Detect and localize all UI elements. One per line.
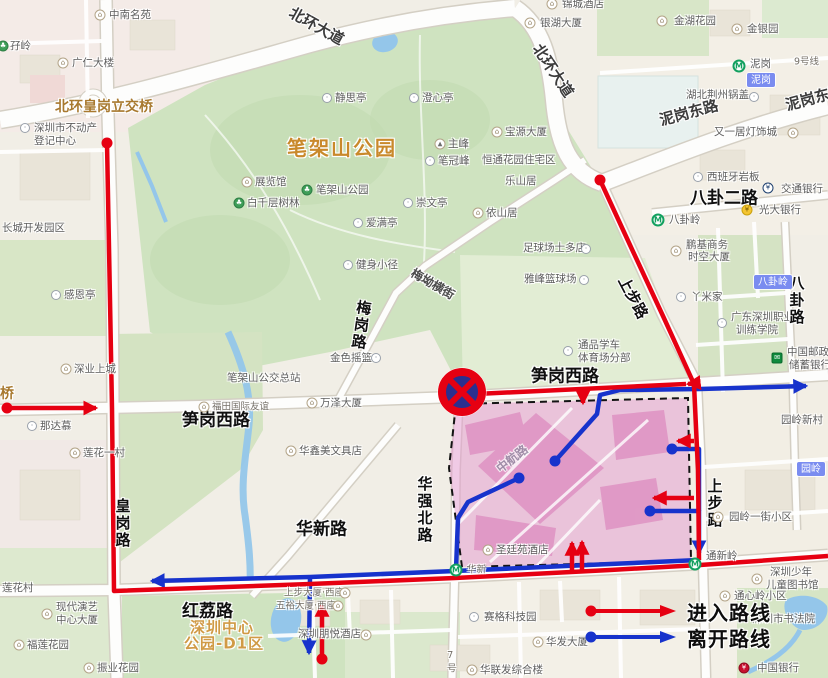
map-base: [0, 0, 828, 678]
restricted-zone: [449, 398, 691, 567]
map-canvas[interactable]: 中南名苑孖岭广仁大楼北环皇岗立交桥深圳市不动产登记中心长城开发园区展览馆白千层树…: [0, 0, 828, 678]
map-image: [0, 0, 828, 678]
legend-enter-label: 进入路线: [687, 597, 771, 626]
leave-route-sample-icon: [584, 629, 678, 645]
legend-enter-row: 进入路线: [584, 598, 771, 624]
legend-leave-row: 离开路线: [584, 624, 771, 650]
legend-leave-label: 离开路线: [687, 623, 771, 652]
legend: 进入路线 离开路线: [584, 598, 771, 650]
enter-route-sample-icon: [584, 603, 678, 619]
no-stopping-sign-icon: [438, 368, 487, 417]
